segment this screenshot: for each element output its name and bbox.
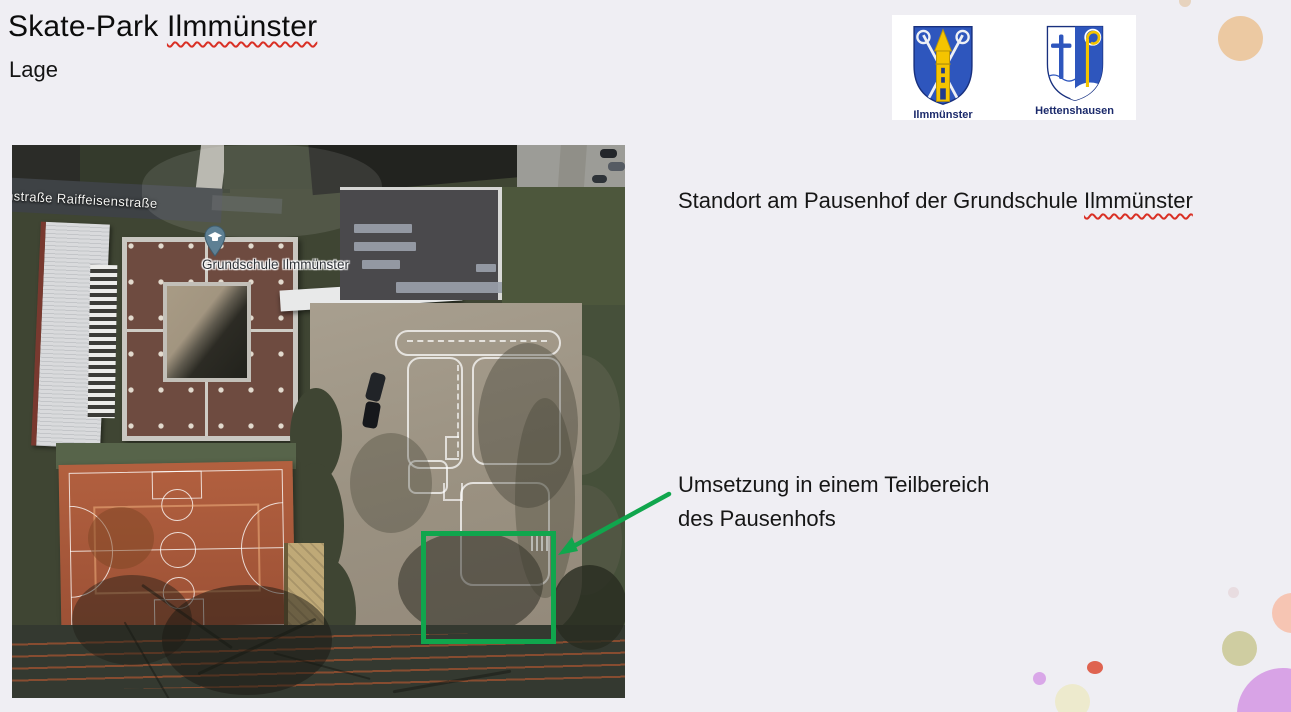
solar-panel bbox=[476, 264, 496, 272]
hettenshausen-crest-icon bbox=[1043, 23, 1107, 103]
solar-panel bbox=[362, 260, 400, 269]
school-map-pin-icon bbox=[203, 225, 227, 257]
lane-dashed-line bbox=[407, 340, 547, 342]
satellite-map-image: nstraße Raiffeisenstraße bbox=[12, 145, 625, 698]
crest-label-hettenshausen: Hettenshausen bbox=[1035, 105, 1114, 117]
solar-panel bbox=[354, 242, 416, 251]
car bbox=[600, 149, 617, 158]
note-umsetzung: Umsetzung in einem Teilbereich des Pause… bbox=[678, 468, 989, 536]
decorative-circle bbox=[1218, 16, 1263, 61]
hall-building-roof bbox=[340, 187, 502, 300]
standort-text: Standort am Pausenhof der Grundschule bbox=[678, 188, 1084, 213]
tree-shadow bbox=[162, 585, 332, 695]
page-subtitle: Lage bbox=[9, 57, 58, 83]
crest-ilmmuenster: Ilmmünster bbox=[908, 23, 978, 121]
decorative-circle bbox=[1222, 631, 1257, 666]
tree-shadow bbox=[350, 433, 432, 533]
decorative-circle bbox=[1087, 661, 1103, 674]
decorative-circle bbox=[1272, 593, 1291, 633]
decorative-circle bbox=[1033, 672, 1046, 685]
decorative-circle bbox=[1237, 668, 1291, 712]
slide: Skate-Park Ilmmünster Lage bbox=[0, 0, 1291, 712]
title-prefix: Skate-Park bbox=[8, 10, 167, 43]
tree-crown-shadow bbox=[88, 507, 154, 569]
umsetzung-line2: des Pausenhofs bbox=[678, 502, 989, 536]
page-title: Skate-Park Ilmmünster bbox=[8, 10, 317, 44]
lane-stub-marking bbox=[445, 436, 459, 460]
decorative-circle bbox=[1228, 587, 1239, 598]
umsetzung-line1: Umsetzung in einem Teilbereich bbox=[678, 468, 989, 502]
crest-hettenshausen: Hettenshausen bbox=[1035, 23, 1114, 117]
title-highlight: Ilmmünster bbox=[167, 10, 317, 43]
crest-label-ilmmuenster: Ilmmünster bbox=[913, 109, 972, 121]
solar-panel bbox=[354, 224, 412, 233]
crest-panel: Ilmmünster Hettenshausen bbox=[892, 15, 1136, 120]
note-standort: Standort am Pausenhof der Grundschule Il… bbox=[678, 184, 1193, 218]
ilmmuenster-crest-icon bbox=[908, 23, 978, 107]
school-poi-label: Grundschule Ilmmünster bbox=[188, 257, 363, 272]
decorative-circle bbox=[1055, 684, 1090, 712]
car bbox=[592, 175, 607, 183]
map-grass-right bbox=[502, 187, 625, 305]
decorative-circle bbox=[1179, 0, 1191, 7]
car bbox=[608, 162, 625, 171]
highlight-rectangle bbox=[421, 531, 556, 644]
lane-stub-marking bbox=[443, 483, 463, 501]
parked-car bbox=[362, 401, 381, 429]
tree-shadow bbox=[552, 565, 625, 650]
solar-panel bbox=[396, 282, 514, 293]
standort-highlight: Ilmmünster bbox=[1084, 188, 1193, 213]
parked-car bbox=[365, 372, 387, 403]
school-courtyard bbox=[163, 282, 251, 382]
pergola-stairs bbox=[88, 265, 118, 418]
